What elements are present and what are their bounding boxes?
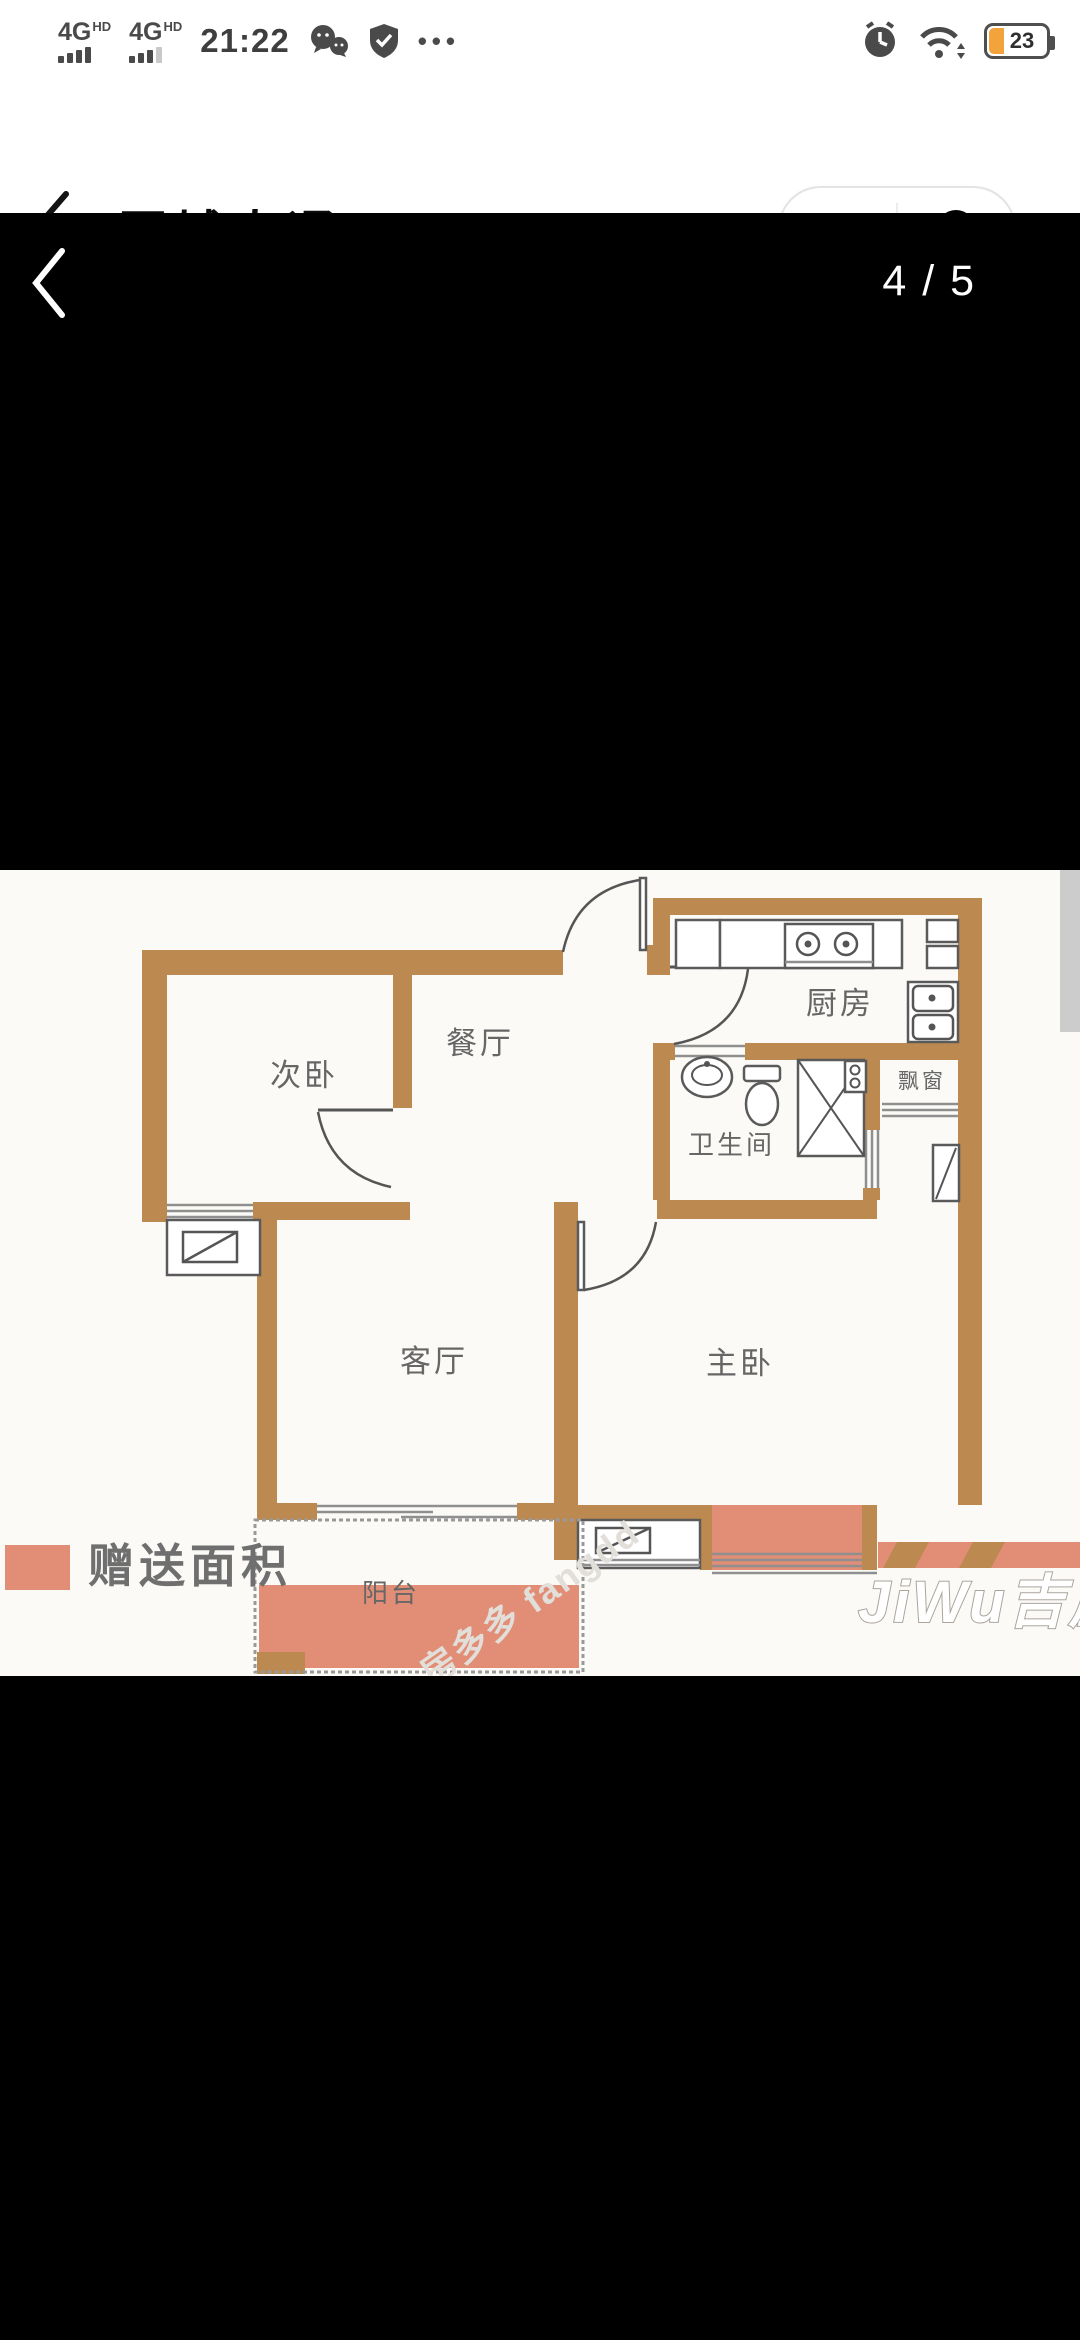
sim1-network-label: 4G <box>58 20 91 45</box>
alarm-clock-icon <box>860 21 900 61</box>
status-bar: 4G HD 4G HD 21:22 <box>0 0 1080 82</box>
battery-percent: 23 <box>1010 28 1034 54</box>
room-label-living: 客厅 <box>400 1344 468 1379</box>
room-label-second-bedroom: 次卧 <box>270 1058 338 1093</box>
room-label-balcony: 阳台 <box>362 1579 420 1608</box>
page-indicator: 4 / 5 <box>882 257 976 306</box>
battery-fill <box>989 28 1004 54</box>
room-label-master-bedroom: 主卧 <box>706 1346 774 1381</box>
sim2-network-label: 4G <box>129 20 162 45</box>
sim2-hd-badge: HD <box>164 20 183 33</box>
clock-time: 21:22 <box>200 22 289 60</box>
legend: 赠送面积 <box>5 1541 292 1592</box>
sim2-signal-icon: 4G HD <box>129 20 182 63</box>
sim1-hd-badge: HD <box>92 20 111 33</box>
room-label-bay-window: 飘窗 <box>898 1069 946 1093</box>
image-viewer: 4 / 5 <box>0 213 1080 2340</box>
floor-plan-image[interactable]: 次卧 餐厅 厨房 卫生间 飘窗 客厅 主卧 阳台 赠送面积 房多多 fangdd <box>0 870 1080 1676</box>
legend-label: 赠送面积 <box>88 1541 292 1592</box>
phone-screen: 4G HD 4G HD 21:22 <box>0 0 1080 2340</box>
status-bar-left: 4G HD 4G HD 21:22 <box>30 20 460 63</box>
security-shield-icon <box>368 23 400 59</box>
wifi-icon <box>916 21 968 61</box>
room-label-dining: 餐厅 <box>446 1026 514 1061</box>
sim1-signal-icon: 4G HD <box>58 20 111 63</box>
kitchen-fixtures <box>676 920 958 1042</box>
app-header: 冠城大通 <box>0 82 1080 213</box>
battery-icon: 23 <box>984 23 1050 59</box>
image-edge-strip <box>1060 870 1080 1032</box>
legend-swatch <box>5 1545 70 1590</box>
status-more-dots-icon: ••• <box>418 26 460 57</box>
room-label-kitchen: 厨房 <box>806 986 874 1021</box>
room-label-bathroom: 卫生间 <box>688 1131 775 1160</box>
viewer-back-button[interactable] <box>26 245 70 321</box>
wechat-icon <box>308 24 350 58</box>
status-bar-right: 23 <box>860 21 1050 61</box>
watermark-jiwu: JiWu吉屋 <box>858 1570 1080 1635</box>
